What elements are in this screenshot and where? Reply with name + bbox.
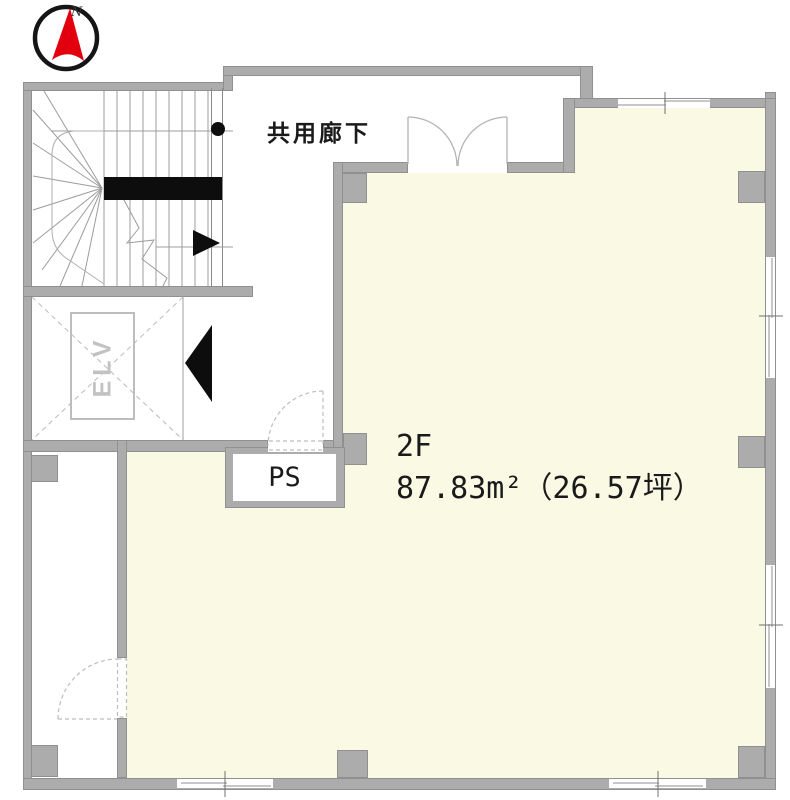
double-door-swing <box>408 117 507 166</box>
window <box>618 99 710 108</box>
pillar <box>738 746 765 778</box>
compass-north-label: N <box>71 5 82 20</box>
wall <box>580 66 593 99</box>
pillar <box>31 455 58 482</box>
common-corridor-label: 共用廊下 <box>267 114 371 148</box>
pillar <box>342 173 367 203</box>
window <box>177 779 273 788</box>
window <box>766 257 775 378</box>
wall <box>333 162 408 173</box>
wall <box>23 286 253 297</box>
staircase <box>33 88 233 288</box>
double-door-opening <box>408 162 507 173</box>
elevator-label-wrap: ELV <box>70 312 135 420</box>
wall <box>23 82 32 790</box>
wall <box>23 82 233 91</box>
elevator-label: ELV <box>88 335 117 397</box>
pillar <box>31 745 58 777</box>
window <box>766 565 775 688</box>
wall <box>117 718 127 778</box>
pillar <box>738 436 765 468</box>
pillar <box>738 171 765 203</box>
main-room-area <box>575 108 765 452</box>
wall <box>117 440 127 658</box>
pillar <box>343 433 367 465</box>
wall <box>563 98 575 173</box>
window <box>609 779 706 788</box>
floor-label: 2F <box>396 429 432 464</box>
main-room-area <box>343 173 575 452</box>
door-opening <box>268 440 323 452</box>
pillar <box>337 750 368 778</box>
pipe-shaft-label: PS <box>233 454 336 501</box>
floor-plan: N 共用廊下 2F 87.83m²（26.57坪） PS ELV <box>0 0 790 800</box>
area-label: 87.83m²（26.57坪） <box>396 463 703 507</box>
wall <box>223 66 593 76</box>
door-opening <box>117 658 127 718</box>
compass-icon <box>35 7 97 69</box>
wall <box>333 162 343 452</box>
